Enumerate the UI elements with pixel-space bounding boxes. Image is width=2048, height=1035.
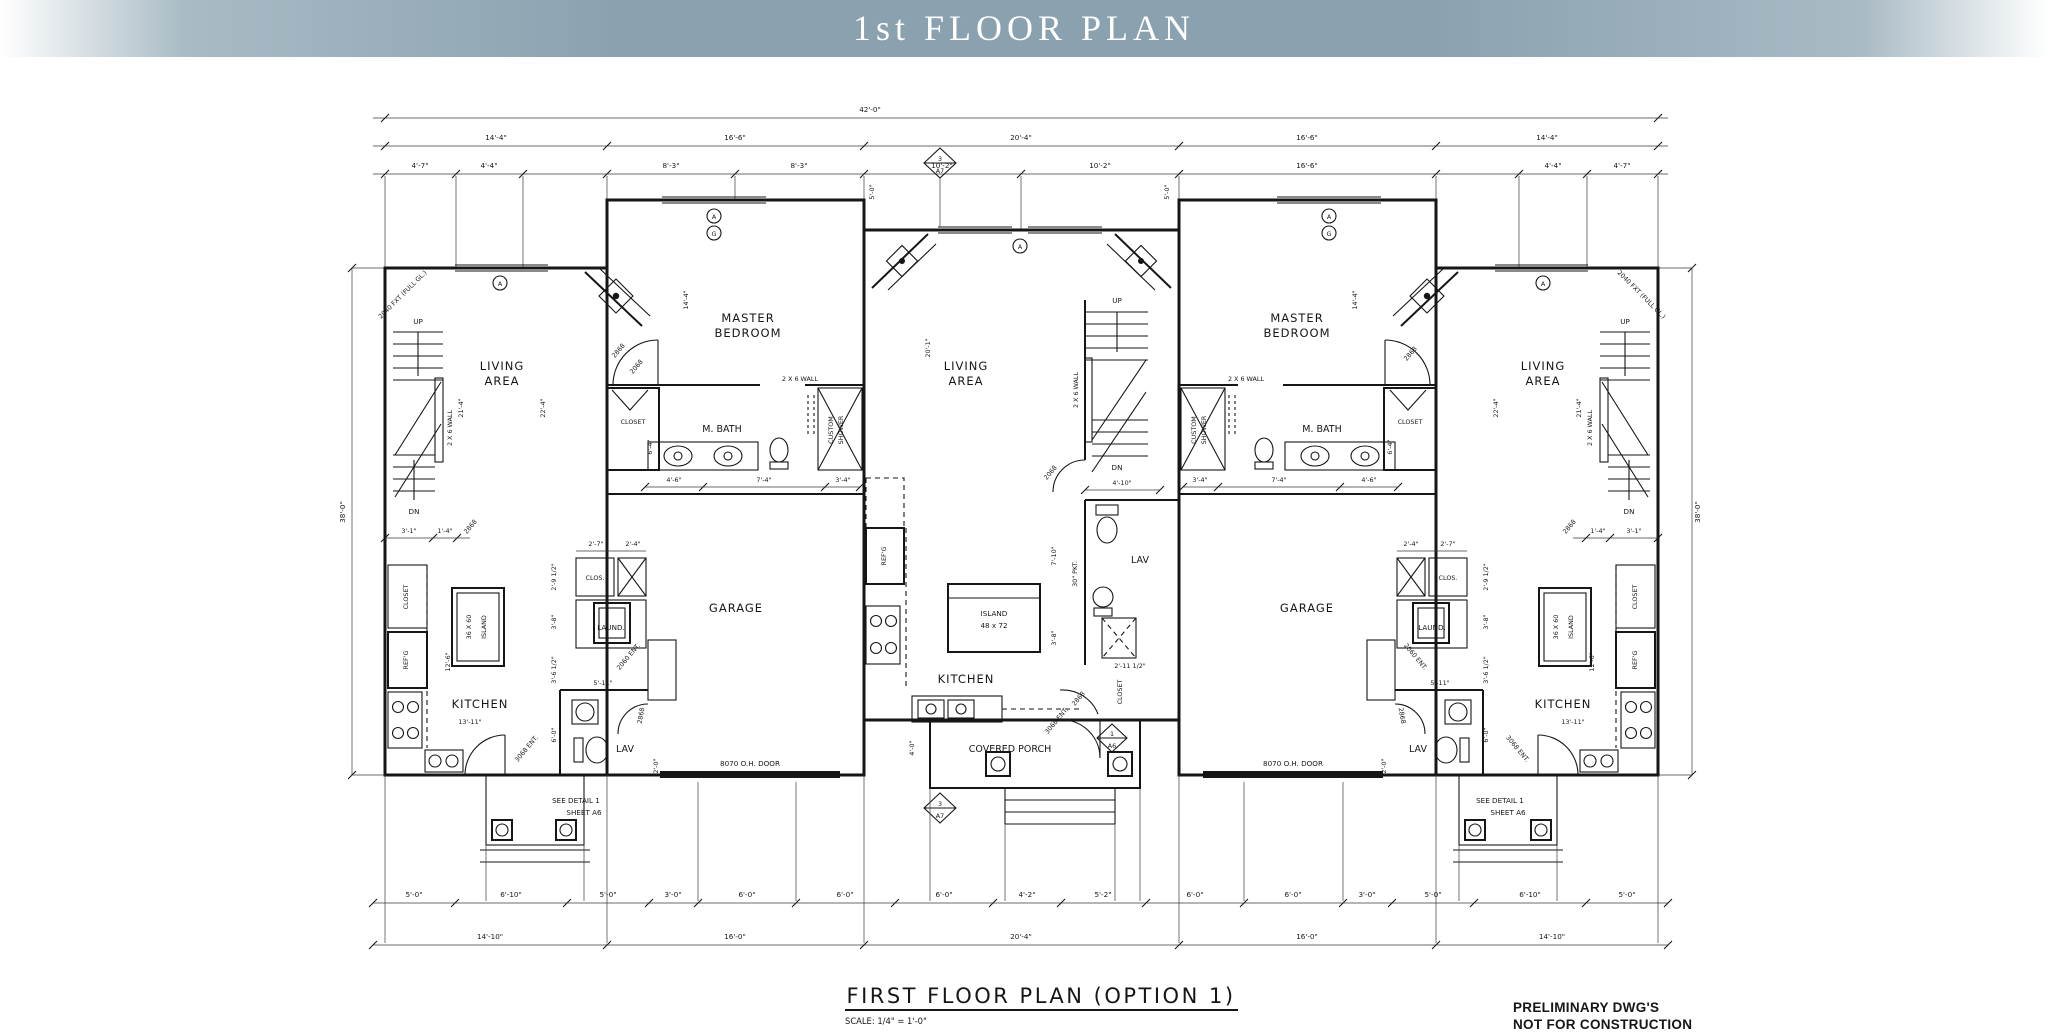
windows [455, 197, 1588, 271]
stair-up-label: UP [1112, 296, 1122, 305]
dim: 14'-4" [682, 290, 690, 309]
dim: 3'-4" [1192, 476, 1207, 484]
dim: 7'-4" [756, 476, 771, 484]
drawing-scale: SCALE: 1/4" = 1'-0" [845, 1016, 927, 1026]
detail-note-1: SEE DETAIL 1 [1476, 796, 1524, 805]
right-unit: UP DN 2 X 6 WALL 21'-4" 22'-4" 2040 FXT … [1492, 269, 1667, 775]
dim: 3'-8" [550, 614, 558, 629]
dim: 2'-9 1/2" [550, 563, 558, 591]
wall-note: 2 X 6 WALL [1586, 410, 1594, 447]
island-label: ISLAND [1567, 615, 1575, 639]
lav-label-right: LAV [1409, 744, 1427, 755]
room-master-left-2: BEDROOM [714, 326, 781, 340]
dim: 1'-4" [1590, 527, 1605, 535]
island-dim: 36 X 60 [465, 615, 473, 640]
dim: 8'-3" [662, 161, 679, 170]
lav-label-left: LAV [616, 744, 634, 755]
dim-side-right: 38'-0" [1693, 501, 1702, 523]
garage-door-label-left: 8070 O.H. DOOR [720, 759, 780, 768]
door-label: 2868 [462, 518, 479, 536]
dim: 14'-4" [1351, 290, 1359, 309]
drawing-title: FIRST FLOOR PLAN (OPTION 1) [846, 984, 1235, 1008]
door-label: 2868 [636, 707, 647, 724]
top-dimension-rows: 42'-0" 14'-4" 16'-6" 20'-4" 16'-6" 14'-4… [373, 105, 1668, 200]
dim: 16'-0" [1296, 932, 1318, 941]
room-living-right-1: LIVING [1521, 359, 1566, 373]
room-garage-left: GARAGE [709, 601, 763, 615]
door-label: 2868 [1397, 707, 1408, 724]
dim: 6'-0" [1186, 890, 1203, 899]
wall-note: 2 X 6 WALL [782, 375, 819, 383]
window-markers: A A G A A G A [493, 209, 1550, 290]
stair-dn-label: DN [1112, 463, 1123, 472]
door-label: 2868 [1561, 518, 1578, 536]
dim: 16'-6" [724, 133, 746, 142]
wall-note: 2 X 6 WALL [446, 410, 454, 447]
dim: 5'-0" [1163, 184, 1171, 199]
dim: 3'-6 1/2" [550, 656, 558, 684]
dim: 16'-6" [1296, 161, 1318, 170]
stairs-right [1600, 332, 1650, 500]
dim: 6'-10" [500, 890, 522, 899]
dim: 3'-4" [835, 476, 850, 484]
dim: 14'-4" [485, 133, 507, 142]
module-d: MASTER BEDROOM 14'-4" 2 X 6 WALL 2868 CL… [1179, 290, 1436, 778]
wall-note: 2 X 6 WALL [1228, 375, 1265, 383]
dim: 4'-4" [1544, 161, 1561, 170]
room-garage-right: GARAGE [1280, 601, 1334, 615]
room-living-center-2: AREA [949, 374, 984, 388]
dim: 5'-0" [1424, 890, 1441, 899]
dim: 10'-2" [1089, 161, 1111, 170]
island-dim: 36 X 60 [1552, 615, 1560, 640]
dim: 5'-0" [405, 890, 422, 899]
closet-label: CLOSET [1631, 584, 1639, 609]
left-unit: UP DN 2 X 6 WALL 21'-4" 22'-4" 2040 FXT … [377, 269, 547, 775]
island-dim: 48 x 72 [980, 621, 1007, 630]
dim: 22'-4" [1492, 398, 1500, 417]
dim: 2'-4" [1403, 540, 1418, 548]
dim: 4'-4" [480, 161, 497, 170]
dim: 4'-0" [908, 740, 916, 755]
window-note: 2040 FXT (FULL GL.) [1616, 269, 1668, 321]
dim-side-left: 38'-0" [338, 501, 347, 523]
laund-label: LAUND. [1418, 623, 1446, 632]
room-master-right-1: MASTER [1270, 311, 1323, 325]
dim: 6'-10" [1519, 890, 1541, 899]
dim: 4'-7" [411, 161, 428, 170]
dim: 2'-0" [1380, 758, 1388, 773]
pocket-door-label: 30" PKT. [1071, 561, 1079, 587]
room-kitchen-center: KITCHEN [938, 672, 995, 686]
closet-label: CLOSET [1398, 418, 1423, 426]
dim: 2'-7" [1440, 540, 1455, 548]
clos-label: CLOS. [1439, 574, 1458, 582]
dim: 5'-11" [593, 679, 612, 687]
refg-label: REF'G [880, 547, 888, 566]
dim: 21'-4" [457, 398, 465, 417]
room-living-right-2: AREA [1526, 374, 1561, 388]
island-label: ISLAND [981, 609, 1008, 618]
marker-num: 1 [1110, 730, 1114, 738]
dim: 2'-11 1/2" [1114, 662, 1146, 670]
garage-door-label-right: 8070 O.H. DOOR [1263, 759, 1323, 768]
room-kitchen-left: KITCHEN [452, 697, 509, 711]
marker-g: G [1327, 230, 1332, 238]
dim-overall: 42'-0" [859, 105, 881, 114]
dim: 3'-8" [1050, 630, 1058, 645]
stair-dn-label: DN [1624, 507, 1635, 516]
dim: 3'-0" [664, 890, 681, 899]
dim: 12'-6" [444, 652, 452, 671]
dim: 3'-1" [1626, 527, 1641, 535]
door-label: 2868 [1070, 690, 1087, 708]
door-label: 2060 ENT. [1402, 642, 1429, 672]
laund-label: LAUND. [597, 623, 625, 632]
room-master-left-1: MASTER [721, 311, 774, 325]
closet-label: CLOSET [621, 418, 646, 426]
marker-a: A [1541, 280, 1546, 288]
service-strip-left: 2'-7" 2'-4" CLOS. LAUND. 2'-9 1/2" 3'-8"… [550, 540, 676, 775]
dim: 3'-0" [1358, 890, 1375, 899]
side-dimensions: 38'-0" 38'-0" [338, 264, 1702, 779]
marker-num: 3 [938, 800, 942, 808]
room-mbath-right: M. BATH [1302, 424, 1341, 435]
detail-note-1: SEE DETAIL 1 [552, 796, 600, 805]
room-kitchen-right: KITCHEN [1535, 697, 1592, 711]
dim: 5'-0" [1618, 890, 1635, 899]
stair-dn-label: DN [409, 507, 420, 516]
marker-sheet: A6 [1108, 742, 1116, 750]
dim: 20'-1" [924, 338, 932, 357]
dim: 6'-0" [935, 890, 952, 899]
dim: 5'-0" [599, 890, 616, 899]
lav-label-center: LAV [1131, 555, 1149, 566]
preliminary-watermark: PRELIMINARY DWG'S NOT FOR CONSTRUCTION [1513, 1000, 1692, 1032]
dim: 8'-3" [790, 161, 807, 170]
stair-up-label: UP [413, 317, 423, 326]
door-label: 2868 [610, 342, 627, 360]
marker-a: A [712, 213, 717, 221]
dim: 14'-4" [1536, 133, 1558, 142]
service-strip-right: 2'-4" 2'-7" CLOS. LAUND. 2'-9 1/2" 3'-8"… [1367, 540, 1490, 775]
dim: 2'-4" [625, 540, 640, 548]
building-outline [385, 200, 1658, 775]
stairs-center [1085, 300, 1148, 472]
refg-label: REF'G [402, 651, 410, 670]
shower-label-2: SHOWER [1200, 415, 1208, 444]
dim: 6'-0" [836, 890, 853, 899]
dim: 22'-4" [539, 398, 547, 417]
refg-label: REF'G [1631, 651, 1639, 670]
door-label: 2060 ENT. [615, 642, 642, 672]
closet-label: CLOSET [402, 584, 410, 609]
dim: 7'-4" [1271, 476, 1286, 484]
dim: 5'-11" [1430, 679, 1449, 687]
door-label: 2868 [1402, 345, 1419, 363]
island-label: ISLAND [480, 615, 488, 639]
clos-label: CLOS. [586, 574, 605, 582]
shower-label-1: CUSTOM [827, 416, 835, 444]
dim: 4'-7" [1613, 161, 1630, 170]
dim: 1'-4" [437, 527, 452, 535]
detail-note-2: SHEET A6 [1490, 808, 1526, 817]
dim: 5'-0" [868, 184, 876, 199]
dim: 2'-9 1/2" [1482, 563, 1490, 591]
door-label: 3068 ENT. [1504, 734, 1531, 764]
dim: 14'-10" [1539, 932, 1565, 941]
marker-num: 3 [938, 155, 942, 163]
marker-g: G [712, 230, 717, 238]
floor-plan-drawing: 42'-0" 14'-4" 16'-6" 20'-4" 16'-6" 14'-4… [0, 0, 2048, 1035]
prelim-note-1: PRELIMINARY DWG'S [1513, 1000, 1659, 1015]
shower-label-1: CUSTOM [1190, 416, 1198, 444]
dim: 7'-10" [1050, 546, 1058, 565]
door-label: 3068 ENT. [513, 734, 540, 764]
dim: 5'-2" [1094, 890, 1111, 899]
dim: 20'-4" [1010, 133, 1032, 142]
right-stoop: SEE DETAIL 1 SHEET A6 [1453, 775, 1563, 862]
room-living-center-1: LIVING [944, 359, 989, 373]
marker-sheet: A7 [936, 812, 944, 820]
stair-up-label: UP [1620, 317, 1630, 326]
dim: 6'-0" [550, 727, 558, 742]
dim: 3'-6 1/2" [1482, 656, 1490, 684]
drawing-title-block: FIRST FLOOR PLAN (OPTION 1) SCALE: 1/4" … [845, 984, 1238, 1026]
marker-sheet: A7 [936, 167, 944, 175]
dim: 13'-11" [1561, 718, 1584, 726]
dim: 3'-8" [1482, 614, 1490, 629]
dim: 16'-0" [724, 932, 746, 941]
dim: 14'-10" [477, 932, 503, 941]
stairs-left [393, 332, 443, 500]
marker-a: A [1327, 213, 1332, 221]
dim: 16'-6" [1296, 133, 1318, 142]
detail-note-2: SHEET A6 [566, 808, 602, 817]
dim: 4'-6" [666, 476, 681, 484]
marker-a: A [498, 280, 503, 288]
prelim-note-2: NOT FOR CONSTRUCTION [1513, 1017, 1692, 1032]
dim: 4'-6" [1361, 476, 1376, 484]
wall-note: 2 X 6 WALL [1072, 372, 1080, 409]
dim: 4'-2" [1018, 890, 1035, 899]
module-b: MASTER BEDROOM 14'-4" 2 X 6 WALL 2868 20… [607, 290, 864, 778]
dim: 6'-0" [738, 890, 755, 899]
top-extension-lines [385, 176, 1658, 268]
dim: 20'-4" [1010, 932, 1032, 941]
room-living-left-1: LIVING [480, 359, 525, 373]
closet-label: CLOSET [1116, 679, 1124, 704]
dim: 2'-0" [652, 758, 660, 773]
dim: 6'-0" [1284, 890, 1301, 899]
dim: 2'-7" [588, 540, 603, 548]
dim: 3'-1" [401, 527, 416, 535]
room-master-right-2: BEDROOM [1263, 326, 1330, 340]
room-living-left-2: AREA [485, 374, 520, 388]
dim: 21'-4" [1575, 398, 1583, 417]
dim: 4'-10" [1112, 479, 1131, 487]
bottom-dimension-rows: 5'-0" 6'-10" 5'-0" 3'-0" 6'-0" 6'-0" 6'-… [369, 890, 1672, 949]
shower-label-2: SHOWER [837, 415, 845, 444]
door-label: 2068 [628, 358, 645, 376]
marker-a: A [1018, 243, 1023, 251]
dim: 13'-11" [458, 718, 481, 726]
room-mbath-left: M. BATH [702, 424, 741, 435]
center-unit: LIVING AREA 20'-1" UP DN 2 X 6 WALL 2068… [866, 296, 1179, 824]
